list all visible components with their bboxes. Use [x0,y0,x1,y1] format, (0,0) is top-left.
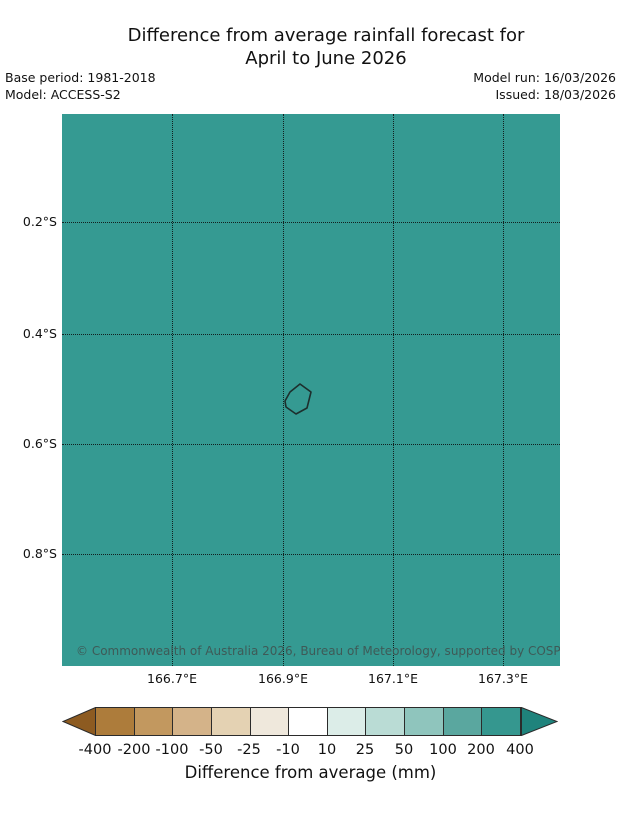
model-label: Model: ACCESS-S2 [5,86,156,103]
colorbar-cell [173,708,212,735]
gridline-vertical [393,114,394,666]
colorbar-right-arrow [521,707,558,736]
x-axis-tick: 166.9°E [238,671,328,686]
colorbar-cell [444,708,483,735]
title-line-1: Difference from average rainfall forecas… [26,24,621,47]
nauru-coastline-outline [283,382,315,418]
x-axis-tick: 167.1°E [348,671,438,686]
colorbar-cell [482,708,521,735]
gridline-horizontal [62,222,560,223]
x-axis-tick: 166.7°E [127,671,217,686]
gridline-horizontal [62,334,560,335]
colorbar-tick: 400 [494,742,546,758]
gridline-horizontal [62,444,560,445]
colorbar-cell [405,708,444,735]
colorbar-cell [251,708,290,735]
y-axis-tick: 0.6°S [0,437,57,451]
model-run-label: Model run: 16/03/2026 [473,69,616,86]
colorbar-cell [289,708,328,735]
base-period-label: Base period: 1981-2018 [5,69,156,86]
y-axis-tick: 0.4°S [0,327,57,341]
x-axis-tick: 167.3°E [458,671,548,686]
colorbar-cell [135,708,174,735]
run-metadata-left: Base period: 1981-2018 Model: ACCESS-S2 [5,69,156,103]
colorbar-left-arrow [62,707,96,736]
y-axis-tick: 0.2°S [0,215,57,229]
title-line-2: April to June 2026 [26,47,621,70]
colorbar-cell [95,708,135,735]
run-metadata-right: Model run: 16/03/2026 Issued: 18/03/2026 [473,69,616,103]
colorbar-axis-label: Difference from average (mm) [0,763,621,782]
rainfall-forecast-figure: Difference from average rainfall forecas… [0,0,621,839]
colorbar-cell [212,708,251,735]
colorbar-scale [95,707,521,736]
y-axis-tick: 0.8°S [0,547,57,561]
forecast-map: © Commonwealth of Australia 2026, Bureau… [62,114,560,666]
figure-title: Difference from average rainfall forecas… [26,24,621,70]
colorbar-cell [328,708,367,735]
copyright-attribution: © Commonwealth of Australia 2026, Bureau… [76,644,560,658]
gridline-vertical [172,114,173,666]
gridline-horizontal [62,554,560,555]
gridline-vertical [503,114,504,666]
issued-label: Issued: 18/03/2026 [473,86,616,103]
colorbar-cell [366,708,405,735]
